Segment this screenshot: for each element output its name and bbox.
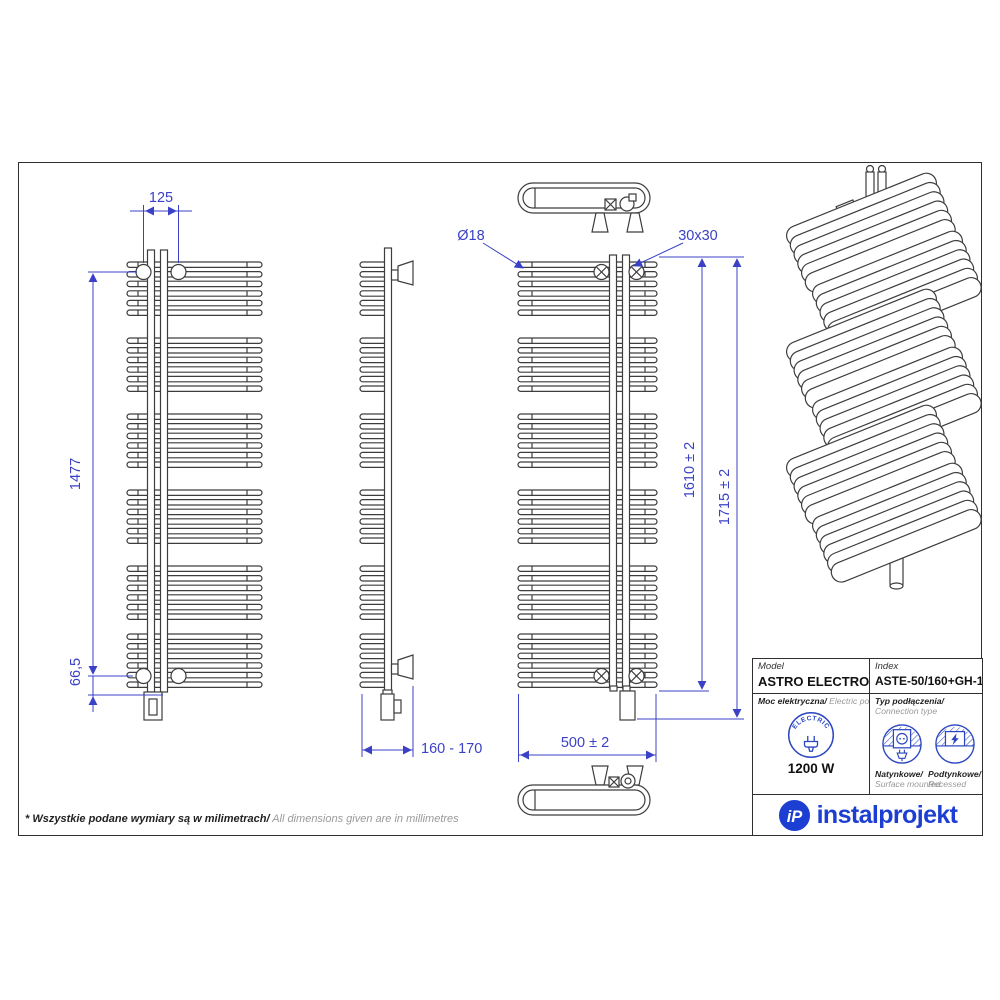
perspective-view <box>784 166 985 590</box>
brand-name: instalprojekt <box>817 801 958 830</box>
electric-plug-icon: ELECTRIC <box>785 709 837 761</box>
bottom-bracket <box>592 766 608 785</box>
side-wall-bracket-top <box>398 261 413 285</box>
front-connection-boss <box>171 669 186 684</box>
front-connection-boss <box>171 265 186 280</box>
front-collector-right <box>161 250 168 692</box>
front-collector-left <box>148 250 155 692</box>
index-label: Index <box>875 661 977 672</box>
front-connection-boss <box>136 669 151 684</box>
dim-500-label: 500 ± 2 <box>561 735 609 751</box>
brand-row: iP instalprojekt <box>753 795 982 835</box>
power-value: 1200 W <box>788 761 835 776</box>
dim-125-label: 125 <box>149 190 173 206</box>
recessed-label: Podtynkowe/Recessed <box>928 769 981 790</box>
instalprojekt-logo-icon: iP <box>778 799 811 832</box>
connection-type-header: Typ podłączenia/Connection type <box>875 696 977 717</box>
logo-badge-text: iP <box>786 807 803 825</box>
dim-1610-label: 1610 ± 2 <box>682 442 698 498</box>
electric-power-header: Moc elektryczna/ Electric power <box>758 696 864 706</box>
technical-drawing: 125 1477 66,5 160 - 170 Ø18 30x30 <box>0 0 1000 1000</box>
index-value: ASTE-50/160+GH-12C1 <box>875 674 977 688</box>
top-view <box>518 183 650 232</box>
recessed-label-pl: Podtynkowe/ <box>928 769 981 779</box>
rear-view <box>518 255 657 720</box>
radiator-technical-drawing-page: 125 1477 66,5 160 - 170 Ø18 30x30 <box>0 0 1000 1000</box>
electric-power-header-pl: Moc elektryczna/ <box>758 696 827 706</box>
front-view <box>127 250 262 720</box>
dim-collector-profile-label: 30x30 <box>678 228 718 244</box>
model-label: Model <box>758 661 864 672</box>
surface-mounted-label-pl: Natynkowe/ <box>875 769 923 779</box>
electric-power-header-en: Electric power <box>827 696 870 706</box>
dim-1715-label: 1715 ± 2 <box>717 469 733 525</box>
side-heating-element <box>381 694 394 720</box>
bottom-view <box>518 766 650 815</box>
connection-type-header-pl: Typ podłączenia/ <box>875 696 944 706</box>
top-bracket <box>627 213 643 232</box>
dim-66-5-label: 66,5 <box>68 658 84 686</box>
footnote-en: All dimensions given are in millimetres <box>270 813 459 825</box>
side-view <box>360 248 413 720</box>
recessed-icon <box>934 723 976 765</box>
side-collector <box>385 248 392 692</box>
top-bracket <box>592 213 608 232</box>
front-connection-boss <box>136 265 151 280</box>
dimensions-footnote: * Wszystkie podane wymiary są w milimetr… <box>25 813 459 825</box>
rear-heating-element <box>620 691 635 720</box>
rear-collector-right <box>623 255 630 688</box>
rear-collector-left <box>610 255 617 688</box>
surface-mounted-icon <box>881 723 923 765</box>
model-value: ASTRO ELECTRO <box>758 674 864 689</box>
title-block: Model ASTRO ELECTRO Index ASTE-50/160+GH… <box>752 658 983 836</box>
footnote-pl: * Wszystkie podane wymiary są w milimetr… <box>25 813 270 825</box>
side-wall-bracket-bottom <box>398 655 413 679</box>
dim-tube-diameter-label: Ø18 <box>457 228 484 244</box>
rear-connection-bosses <box>594 265 644 684</box>
recessed-label-en: Recessed <box>928 779 966 789</box>
dim-1477-label: 1477 <box>68 458 84 490</box>
dim-depth-label: 160 - 170 <box>421 741 482 757</box>
connection-type-header-en: Connection type <box>875 706 937 716</box>
